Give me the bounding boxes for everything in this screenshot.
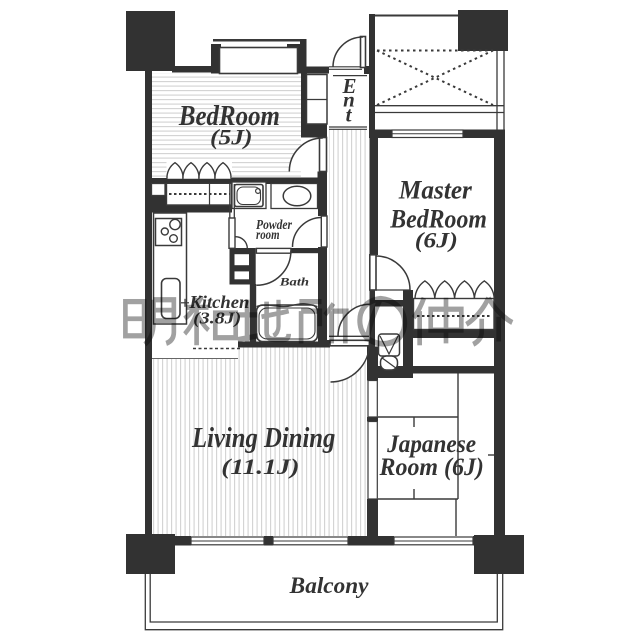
svg-text:Room (6J): Room (6J)	[379, 452, 484, 481]
svg-text:(11.1J): (11.1J)	[221, 454, 299, 479]
svg-text:(6J): (6J)	[415, 228, 458, 253]
svg-text:room: room	[256, 227, 280, 242]
svg-text:(5J): (5J)	[210, 125, 253, 150]
svg-text:Bath: Bath	[279, 275, 310, 289]
svg-text:Balcony: Balcony	[289, 573, 370, 598]
svg-text:Living Dining: Living Dining	[191, 422, 335, 454]
svg-text:Master: Master	[398, 175, 473, 205]
